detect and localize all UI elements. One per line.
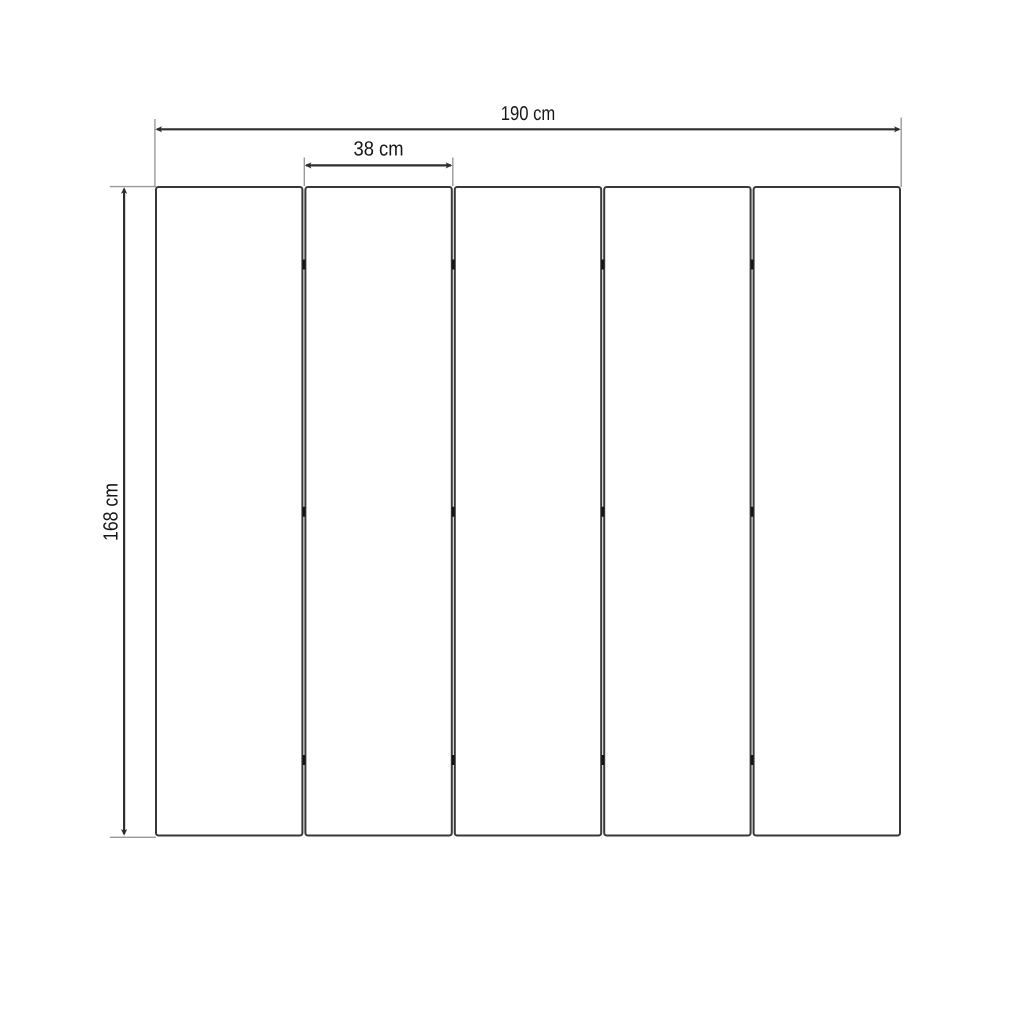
svg-text:168 cm: 168 cm: [100, 483, 123, 541]
svg-text:38 cm: 38 cm: [354, 138, 404, 161]
svg-text:190 cm: 190 cm: [501, 103, 556, 125]
